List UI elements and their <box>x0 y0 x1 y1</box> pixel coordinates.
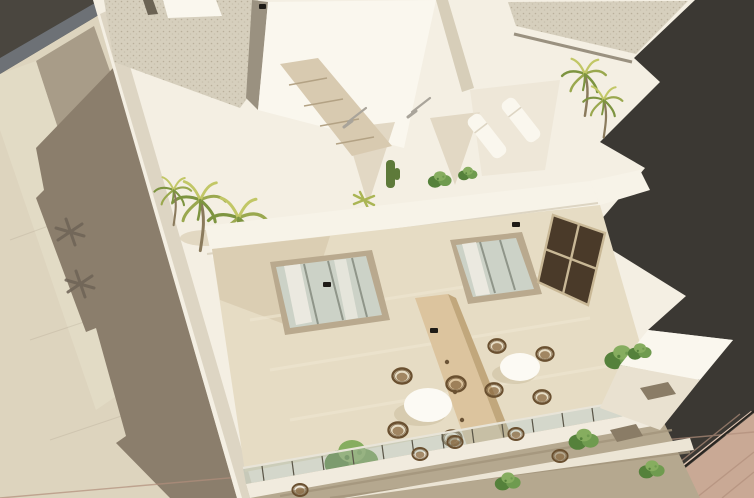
round-table <box>404 388 452 422</box>
partition-hole <box>445 360 449 364</box>
round-table <box>500 353 540 381</box>
roof-skylight-box <box>163 0 222 18</box>
cactus-arm <box>394 168 400 180</box>
wall-lamp-icon <box>430 328 438 333</box>
wall-lamp-icon <box>512 222 520 227</box>
architectural-render-canvas <box>0 0 754 498</box>
glass-door-left <box>270 250 390 335</box>
partition-hole <box>460 418 464 422</box>
cactus <box>386 160 395 188</box>
building-render <box>0 0 754 498</box>
wall-lamp-icon <box>323 282 331 287</box>
wall-lamp-icon <box>259 4 266 9</box>
